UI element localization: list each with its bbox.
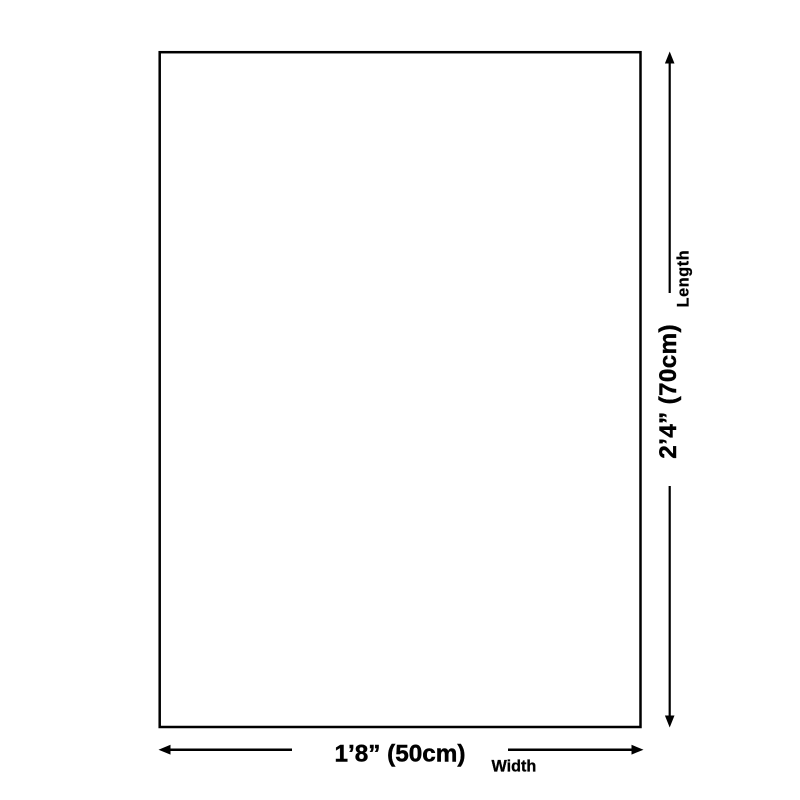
svg-text:2’4” (70cm): 2’4” (70cm) bbox=[655, 324, 682, 459]
svg-text:Width: Width bbox=[492, 758, 537, 776]
svg-text:Length: Length bbox=[675, 250, 693, 308]
svg-text:1’8” (50cm): 1’8” (50cm) bbox=[335, 740, 466, 767]
